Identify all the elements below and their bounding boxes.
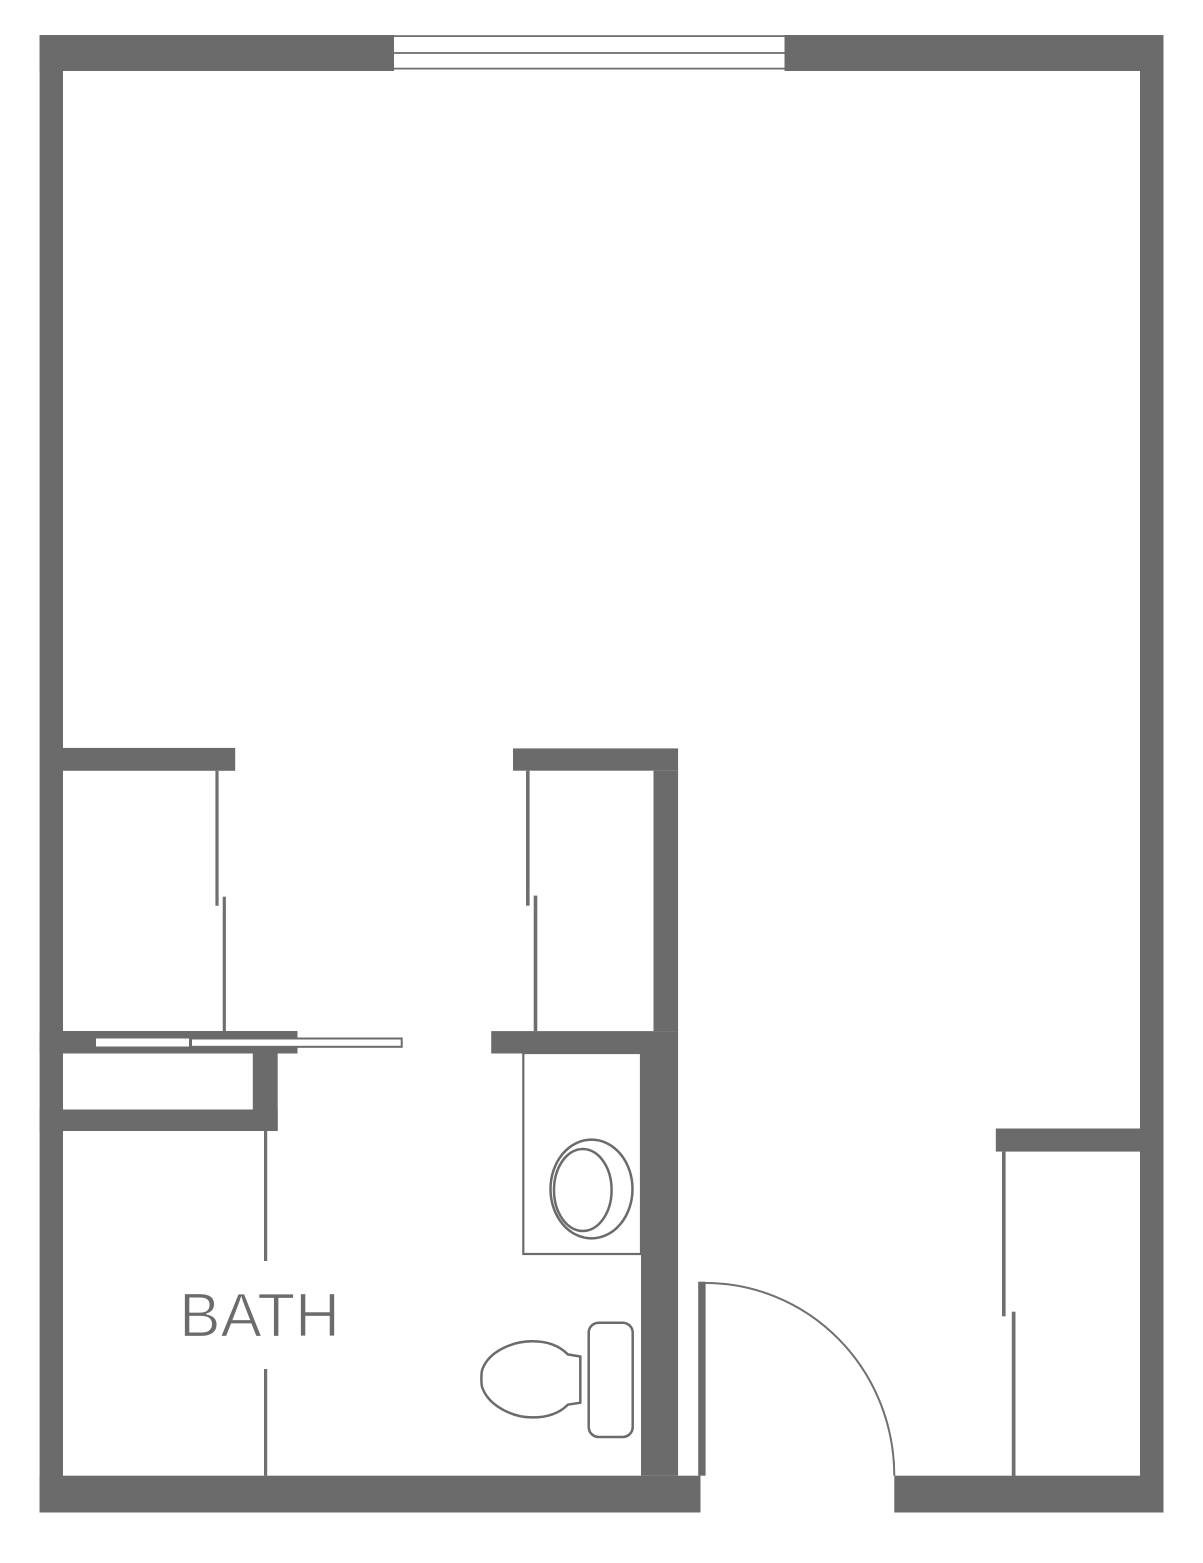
svg-text:BATH: BATH — [179, 1282, 340, 1351]
